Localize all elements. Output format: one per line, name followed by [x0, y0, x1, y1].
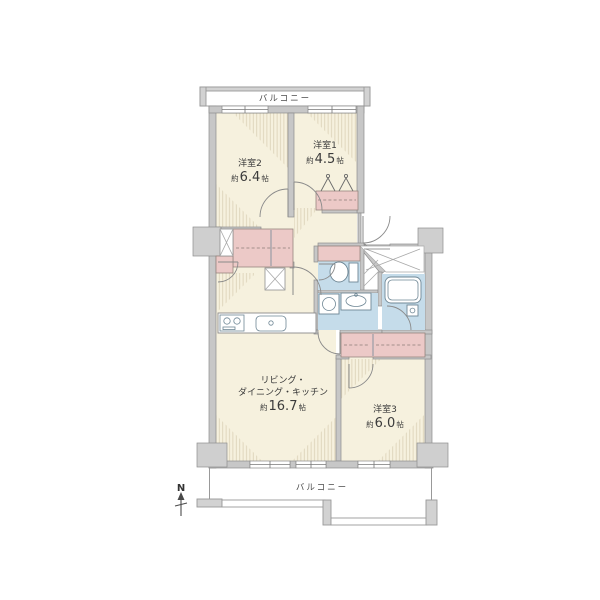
balcony-bottom: バルコニー	[197, 468, 437, 525]
bath-faucet	[407, 305, 418, 316]
toilet-room	[318, 261, 360, 290]
ldk-label-line2: ダイニング・キッチン	[238, 386, 328, 398]
storage-small	[216, 256, 233, 273]
door-entrance	[363, 216, 390, 243]
north-arrow: N	[175, 483, 187, 516]
bedroom-2-name: 洋室2	[238, 157, 262, 169]
pillar-bottom-right	[417, 443, 448, 467]
floor-plan-page: バルコニー	[0, 0, 600, 600]
window-bedroom-3	[358, 461, 390, 468]
window-ldk-1	[250, 461, 290, 468]
window-bedroom-2	[222, 106, 268, 113]
bedroom-1-name: 洋室1	[313, 139, 337, 151]
washing-machine-pan	[319, 294, 339, 314]
window-ldk-2	[296, 461, 326, 468]
cabinet-above-toilet	[318, 246, 360, 261]
pillar-left	[193, 227, 221, 256]
pillar-bottom-left	[197, 443, 227, 467]
washroom	[318, 293, 378, 330]
window-bedroom-1	[308, 106, 356, 113]
bathroom	[382, 274, 425, 330]
balcony-bottom-label: バルコニー	[296, 483, 348, 493]
kitchen	[218, 313, 316, 333]
bedroom-3-name: 洋室3	[373, 403, 397, 415]
bathtub-icon	[385, 277, 421, 303]
balcony-top-label: バルコニー	[259, 94, 311, 104]
floor-plan: バルコニー	[0, 0, 600, 600]
toilet-tank	[349, 263, 358, 282]
ldk-label-line1: リビング・	[260, 374, 305, 386]
balcony-top: バルコニー	[200, 87, 370, 106]
